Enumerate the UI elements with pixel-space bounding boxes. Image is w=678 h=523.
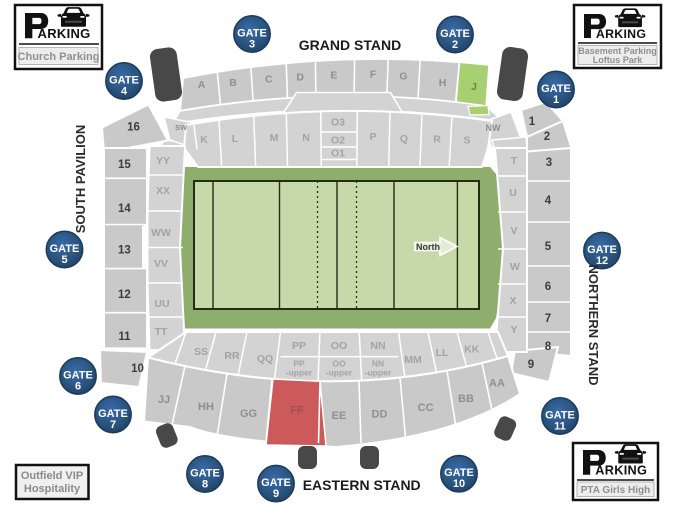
svg-text:ARKING: ARKING <box>595 463 647 478</box>
svg-text:TT: TT <box>155 326 168 338</box>
svg-text:-upper: -upper <box>326 368 353 378</box>
svg-text:JJ: JJ <box>158 394 170 406</box>
svg-text:U: U <box>509 187 517 199</box>
svg-text:M: M <box>270 132 279 144</box>
svg-text:P: P <box>369 131 376 143</box>
svg-text:YY: YY <box>156 155 170 167</box>
svg-text:5: 5 <box>545 241 552 253</box>
svg-text:FF: FF <box>290 405 304 417</box>
svg-text:O2: O2 <box>331 135 345 147</box>
svg-text:KK: KK <box>464 344 480 356</box>
svg-text:ARKING: ARKING <box>596 27 646 41</box>
svg-text:CC: CC <box>418 402 434 414</box>
svg-text:HH: HH <box>198 401 214 413</box>
svg-text:C: C <box>265 74 273 86</box>
svg-text:10: 10 <box>131 363 144 375</box>
svg-text:NN: NN <box>370 340 385 352</box>
svg-text:G: G <box>399 71 407 83</box>
svg-text:EASTERN STAND: EASTERN STAND <box>303 477 421 493</box>
svg-text:EE: EE <box>332 410 347 422</box>
svg-text:2: 2 <box>544 131 550 143</box>
svg-text:A: A <box>198 79 206 91</box>
svg-text:X: X <box>509 295 516 307</box>
svg-text:10: 10 <box>453 478 465 490</box>
svg-text:11: 11 <box>118 331 131 343</box>
svg-text:North: North <box>416 242 440 252</box>
svg-text:R: R <box>433 134 441 146</box>
svg-text:UU: UU <box>154 298 169 310</box>
svg-text:15: 15 <box>118 159 131 171</box>
svg-text:OO: OO <box>331 340 347 352</box>
svg-text:B: B <box>229 77 237 89</box>
svg-text:Loftus Park: Loftus Park <box>593 55 644 65</box>
svg-text:Q: Q <box>400 133 408 145</box>
svg-text:N: N <box>302 132 310 144</box>
svg-text:sw: sw <box>175 122 188 132</box>
svg-text:1: 1 <box>553 94 559 106</box>
svg-text:7: 7 <box>110 419 116 431</box>
svg-text:9: 9 <box>528 359 534 371</box>
svg-text:Y: Y <box>510 324 517 336</box>
svg-text:14: 14 <box>118 203 131 215</box>
svg-text:S: S <box>463 135 470 147</box>
svg-text:DD: DD <box>372 409 388 421</box>
svg-text:8: 8 <box>545 341 552 353</box>
svg-text:16: 16 <box>127 122 140 134</box>
svg-text:XX: XX <box>156 185 170 197</box>
svg-text:5: 5 <box>61 254 67 266</box>
svg-text:V: V <box>510 225 517 237</box>
svg-text:L: L <box>232 133 239 145</box>
svg-text:Outfield VIP: Outfield VIP <box>21 470 83 482</box>
svg-text:6: 6 <box>75 381 81 393</box>
svg-text:O3: O3 <box>331 117 345 129</box>
svg-text:WW: WW <box>151 227 171 239</box>
svg-text:-upper: -upper <box>286 368 313 378</box>
svg-text:13: 13 <box>118 245 131 257</box>
svg-text:D: D <box>296 71 304 83</box>
svg-text:-upper: -upper <box>365 368 392 378</box>
svg-text:Hospitality: Hospitality <box>24 483 81 495</box>
svg-text:NORTHERN STAND: NORTHERN STAND <box>586 264 601 385</box>
svg-text:1: 1 <box>529 116 536 128</box>
svg-text:GRAND STAND: GRAND STAND <box>299 37 401 53</box>
svg-text:T: T <box>511 155 518 167</box>
svg-text:9: 9 <box>273 488 279 500</box>
svg-text:K: K <box>200 134 208 146</box>
svg-text:6: 6 <box>545 281 551 293</box>
svg-text:BB: BB <box>458 393 474 405</box>
svg-text:VV: VV <box>154 258 168 270</box>
svg-text:MM: MM <box>404 354 422 366</box>
svg-text:AA: AA <box>489 377 505 389</box>
svg-text:NW: NW <box>486 123 501 133</box>
svg-text:E: E <box>330 70 337 82</box>
svg-text:LL: LL <box>436 347 449 359</box>
svg-text:O1: O1 <box>331 148 345 160</box>
svg-text:11: 11 <box>554 421 566 433</box>
svg-text:4: 4 <box>121 86 128 98</box>
svg-text:12: 12 <box>118 289 131 301</box>
svg-text:GG: GG <box>240 408 257 420</box>
svg-text:3: 3 <box>249 39 255 51</box>
svg-text:ARKING: ARKING <box>38 26 91 41</box>
svg-text:J: J <box>471 81 477 93</box>
svg-text:PP: PP <box>292 340 306 352</box>
svg-text:7: 7 <box>545 313 551 325</box>
svg-text:SOUTH PAVILION: SOUTH PAVILION <box>73 125 88 234</box>
svg-text:2: 2 <box>452 39 458 51</box>
svg-text:4: 4 <box>545 195 552 207</box>
svg-text:Church Parking: Church Parking <box>18 51 100 63</box>
svg-text:8: 8 <box>202 479 208 491</box>
svg-text:W: W <box>510 261 520 273</box>
svg-text:PTA Girls High: PTA Girls High <box>581 485 650 496</box>
svg-text:F: F <box>370 69 377 81</box>
svg-text:3: 3 <box>546 157 552 169</box>
svg-text:RR: RR <box>224 350 240 362</box>
svg-text:QQ: QQ <box>257 353 273 365</box>
svg-text:SS: SS <box>194 346 208 358</box>
svg-text:H: H <box>439 77 447 89</box>
